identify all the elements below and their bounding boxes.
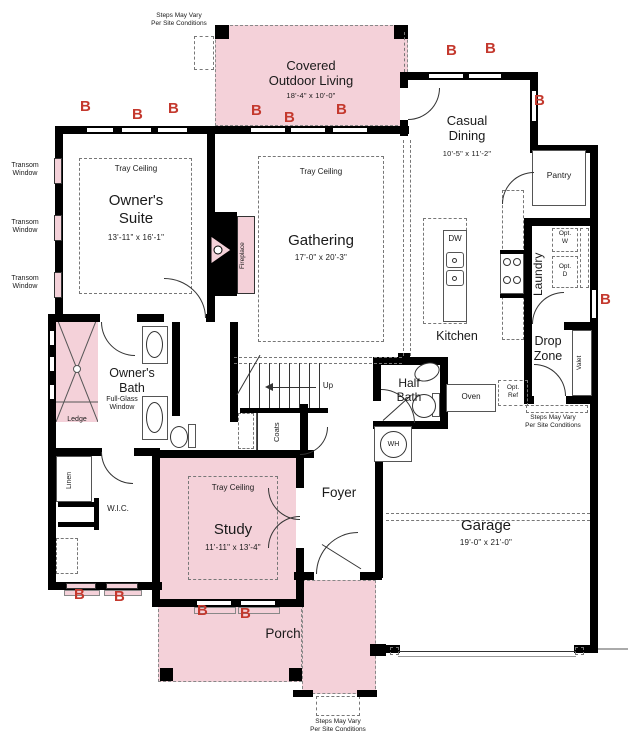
wall [172,322,180,416]
covered-outdoor-living-dims: 18'-4" x 10'-0" [266,92,356,101]
covered-outdoor-living-label: Covered Outdoor Living [246,58,376,89]
wic-shelf-post [94,498,99,530]
garage-label: Garage [446,517,526,535]
transom-window-label: Transom Window [2,162,48,179]
b-marker: B [284,109,295,126]
garage-door-line [398,651,576,652]
wall [55,314,100,322]
vanity-sink [146,331,163,358]
laundry-label: Laundry [531,238,547,310]
transom-window-label: Transom Window [2,275,48,292]
wall [134,448,160,456]
stair-tread [279,363,280,409]
dw-label: DW [444,234,466,243]
b-marker: B [600,291,611,308]
sink-drain [452,276,457,281]
coats-closet-line [256,412,258,450]
floor-plan: Steps May Vary Per Site Conditions Cover… [0,0,628,751]
porch-steps-stoop [316,696,360,716]
garage-steps-dash [526,405,588,413]
b-marker: B [74,586,85,603]
window [250,127,286,133]
window [428,73,464,79]
gathering-tray-label: Tray Ceiling [281,167,361,176]
b-marker: B [251,102,262,119]
sink-drain [452,258,457,263]
fireplace-label: Fireplace [239,234,251,278]
up-arrow-shaft [272,387,316,388]
stair-tread [259,363,260,409]
coats-label: Coats [272,414,284,450]
gathering-label: Gathering [276,232,366,250]
shower-glass-icon [56,316,98,422]
b-marker: B [240,605,251,622]
col-edge-dash [404,32,405,72]
porch-post [394,25,408,39]
wic-shelf [58,502,96,507]
stair-tread [309,363,310,409]
stair-tread [299,363,300,409]
door-arc-pantry [502,172,534,204]
wall [48,448,102,456]
kitchen-gathering-divider [403,140,404,356]
cooktop-cap [500,250,524,254]
garage-door-line [398,656,576,657]
valet-label: Valet [576,340,588,386]
porch-post [293,690,313,697]
steps-note-top: Steps May Vary Per Site Conditions [138,12,220,27]
window [49,384,55,400]
garage-door-jamb [390,647,399,655]
burner [503,276,511,284]
transom-window-glass [54,272,62,298]
drop-zone-label: Drop Zone [524,334,572,364]
opt-ref-label: Opt. Ref [498,384,528,399]
wall [137,314,164,322]
driveway-line [598,648,628,650]
study-tray-label: Tray Ceiling [197,483,269,492]
transom-window-label: Transom Window [2,219,48,236]
window [468,73,502,79]
b-marker: B [534,92,545,109]
stair-tread [289,363,290,409]
toilet-bowl [170,426,188,448]
b-marker: B [168,100,179,117]
toilet-tank [188,424,196,448]
garage-bay-dash [386,513,590,514]
linen-label: Linen [66,462,78,498]
water-heater-label: WH [380,441,407,449]
owners-suite-label: Owner's Suite [94,192,178,227]
wic-shelf [58,522,96,527]
door-arc-owners-suite [164,278,206,318]
casual-dining-label: Casual Dining [432,113,502,144]
transom-window-glass [54,215,62,241]
wall [230,322,238,422]
understair-closet [238,413,254,449]
window [49,330,55,346]
window [49,356,55,372]
b-marker: B [80,98,91,115]
garage-dims: 19'-0" x 21'-0" [444,538,528,547]
wic-label: W.I.C. [96,504,140,513]
transom-window-glass [54,158,62,184]
b-marker: B [132,106,143,123]
porch-area-left [158,604,302,682]
garage-entry-opening [534,396,566,404]
steps-note-garage: Steps May Vary Per Site Conditions [512,414,594,429]
opt-dryer-label: Opt. D [552,263,578,278]
wic-rod [56,538,78,574]
wall [152,450,314,458]
up-label: Up [318,381,338,390]
cooktop-cap [500,294,524,298]
b-marker: B [114,588,125,605]
porch-label: Porch [250,626,316,642]
window [157,127,188,133]
oven-label: Oven [446,392,496,401]
b-marker: B [446,42,457,59]
laundry-cabinet [580,228,589,288]
study-dims: 11'-11" x 13'-4" [191,543,275,552]
window [121,127,152,133]
door-arc-drop-zone [534,364,566,396]
porch-post [160,668,173,681]
window [332,127,368,133]
ledge-label: Ledge [58,416,96,424]
casual-door-opening [400,88,408,120]
casual-dining-dims: 10'-5" x 11'-2" [424,150,510,159]
owners-bath-label: Owner's Bath [96,366,168,396]
b-marker: B [336,101,347,118]
garage-door-jamb [575,647,584,655]
owners-suite-tray-label: Tray Ceiling [96,164,176,173]
porch-post [289,668,302,681]
burner [503,258,511,266]
steps-note-porch: Steps May Vary Per Site Conditions [297,718,379,733]
wall [524,218,598,226]
window [290,127,326,133]
porch-post [357,690,377,697]
burner [513,258,521,266]
study-label: Study [197,521,269,539]
pantry-label: Pantry [534,170,584,180]
b-marker: B [197,602,208,619]
half-bath-label: Half Bath [382,376,436,404]
fireplace-icon [211,230,237,270]
door-arc-hall-foyer [300,427,328,455]
up-arrow-head [265,383,273,391]
kitchen-label: Kitchen [424,329,490,344]
door-arc-owners-bath [101,322,135,356]
entry-stoop [194,36,214,70]
kitchen-gathering-divider [410,140,411,356]
b-marker: B [485,40,496,57]
window [86,127,114,133]
door-arc-wic [101,452,133,484]
owners-suite-dims: 13'-11" x 16'-1" [92,233,180,242]
stair-rail [240,408,328,413]
burner [513,276,521,284]
foyer-label: Foyer [310,485,368,501]
opt-washer-label: Opt. W [552,230,578,245]
full-glass-window-label: Full-Glass Window [94,396,150,413]
window [591,289,597,319]
gathering-dims: 17'-0" x 20'-3" [278,253,364,262]
garage-corner-post [370,644,386,656]
